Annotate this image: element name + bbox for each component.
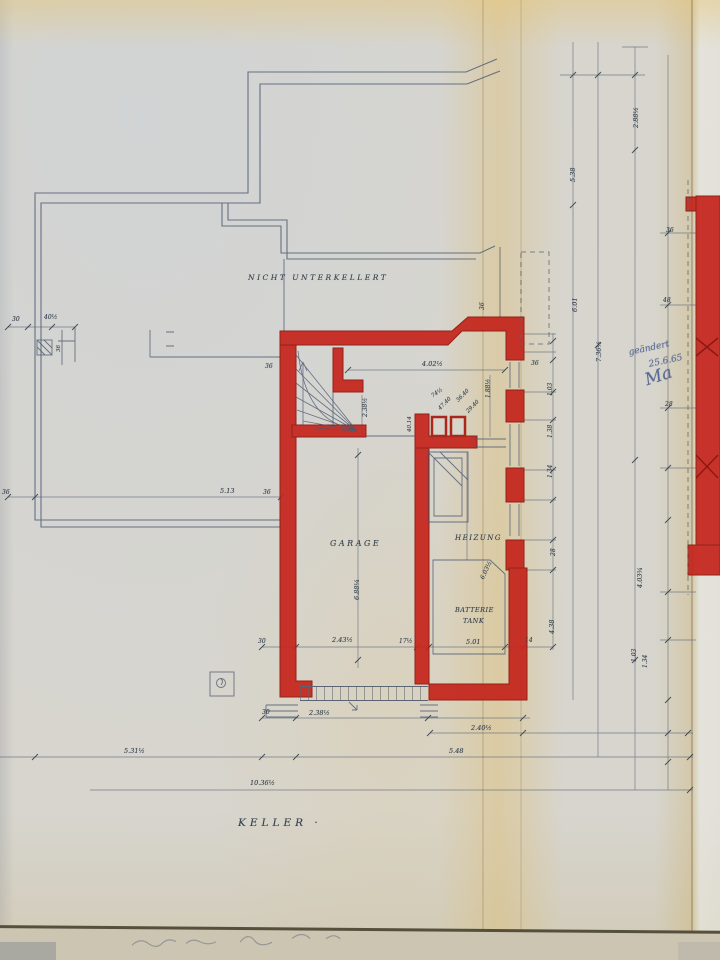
garage-heizung-divider	[415, 440, 429, 684]
dimension-label: 40.14	[408, 416, 414, 432]
dimension-label: 36	[57, 345, 63, 352]
dimension-label: 36	[531, 361, 539, 367]
dimension-label: 1.03	[632, 649, 638, 662]
dimension-label: 4.03¾	[637, 567, 644, 588]
right-wall-seg	[506, 540, 524, 570]
dimension-label: 1.38	[548, 425, 554, 438]
dimension-label: 2.88½	[633, 107, 640, 128]
right-wall-seg	[506, 390, 524, 422]
building-outline	[35, 59, 500, 527]
adjacent-plan-red-walls	[686, 196, 720, 575]
dimension-label: 4.02½	[422, 361, 443, 368]
paper-edge-strip	[0, 925, 720, 960]
dimension-label: 40½	[44, 315, 57, 321]
fold-creases	[483, 0, 692, 932]
dimension-label: 6.01	[572, 298, 579, 312]
dimension-label: 2.40½	[471, 725, 492, 732]
door-step-marks	[266, 705, 438, 717]
dimension-label: 6.88¼	[354, 579, 361, 600]
garage-door-hatch	[300, 686, 428, 701]
dimension-label: 1.34	[643, 655, 649, 668]
top-wall	[280, 317, 524, 360]
dimension-label: 28	[665, 402, 673, 408]
dimension-label: 2.38½	[309, 710, 330, 717]
dimension-label: 36	[263, 490, 271, 496]
drawing-title: KELLER ·	[238, 818, 322, 829]
equipment-label-tank: TANK	[463, 618, 484, 625]
dimension-label: 30	[262, 710, 270, 716]
table-corner-right	[678, 942, 720, 960]
dimension-label: 5.01	[466, 639, 480, 646]
faint-handwriting	[0, 928, 712, 960]
table-corner-left	[0, 942, 56, 960]
dimension-label: 1.34	[548, 465, 554, 478]
room-label-garage: GARAGE	[330, 540, 381, 548]
dimension-label: 1.03	[548, 383, 554, 396]
dimension-label: 36	[2, 490, 10, 496]
dimension-label: 1.88½	[486, 379, 492, 398]
right-wall-seg	[506, 468, 524, 502]
left-wall	[280, 331, 312, 697]
dimension-label: 4.38	[549, 620, 556, 634]
dimension-label: 14	[525, 638, 533, 644]
dimension-label: 2.43½	[332, 637, 353, 644]
chimney-flue	[432, 417, 446, 436]
dimension-label: 5.31½	[124, 748, 145, 755]
dimension-label: 5.13	[220, 488, 234, 495]
area-label: NICHT UNTERKELLERT	[248, 274, 388, 282]
dimension-label: 10.36½	[250, 780, 275, 787]
small-arrow	[349, 702, 357, 710]
dimension-lines	[0, 42, 696, 790]
left-wing-details	[37, 327, 281, 365]
stair-direction-arrow	[299, 362, 307, 426]
dimension-label: 30	[12, 317, 20, 323]
dimension-label: 36	[480, 302, 486, 310]
dimension-label: 36	[265, 364, 273, 370]
dimension-label: 28	[551, 548, 557, 556]
dimension-label: 7.36½	[596, 341, 603, 362]
room-label-heizung: HEIZUNG	[455, 535, 502, 542]
window-lines	[510, 362, 519, 536]
dimension-label: 17½	[399, 639, 412, 645]
chimney-flue	[451, 417, 465, 436]
dimension-label: 36	[666, 228, 674, 234]
right-bottom-wall	[429, 568, 527, 700]
equipment-label-batterie: BATTERIE	[455, 607, 494, 614]
shaft-outline	[428, 452, 468, 522]
dimension-label: 48	[663, 298, 671, 304]
dimension-label: 2.38½	[363, 398, 369, 417]
dimension-label: 30	[258, 639, 266, 645]
plan-linework	[0, 0, 720, 960]
dimension-label: 5.38	[570, 168, 577, 182]
dimension-label: 5.48	[449, 748, 463, 755]
blueprint-photo: NICHT UNTERKELLERTGARAGEHEIZUNGBATTERIET…	[0, 0, 720, 960]
